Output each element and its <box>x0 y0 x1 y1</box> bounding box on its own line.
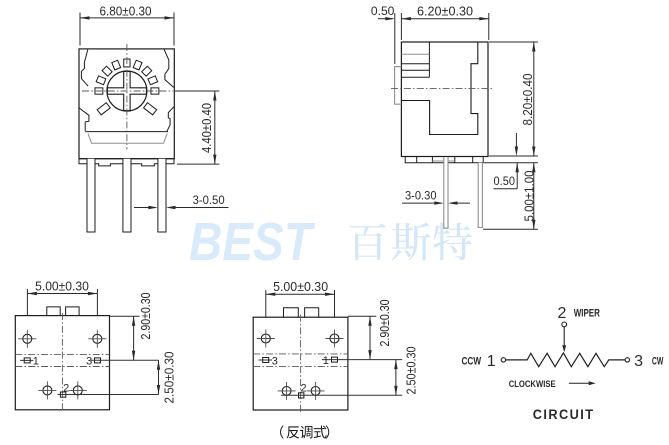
svg-text:2.90±0.30: 2.90±0.30 <box>378 299 392 346</box>
svg-text:0.50: 0.50 <box>371 4 395 18</box>
svg-text:3-0.30: 3-0.30 <box>405 189 437 203</box>
svg-text:1: 1 <box>487 353 496 370</box>
svg-text:CW: CW <box>652 355 664 367</box>
svg-text:CCW: CCW <box>462 355 482 367</box>
svg-text:0.50: 0.50 <box>494 174 516 188</box>
svg-text:8.20±0.40: 8.20±0.40 <box>521 73 535 125</box>
svg-text:5.00±0.30: 5.00±0.30 <box>273 280 328 294</box>
svg-text:2.50±0.30: 2.50±0.30 <box>404 346 418 394</box>
svg-text:4.40±0.40: 4.40±0.40 <box>200 103 214 153</box>
svg-text:WIPER: WIPER <box>574 307 600 319</box>
svg-text:CIRCUIT: CIRCUIT <box>533 407 595 422</box>
svg-text:CLOCKWISE: CLOCKWISE <box>509 379 556 390</box>
svg-text:2.50±0.30: 2.50±0.30 <box>162 351 176 403</box>
svg-text:3-0.50: 3-0.50 <box>193 193 225 207</box>
svg-text:1: 1 <box>323 355 329 367</box>
svg-text:3: 3 <box>634 353 643 370</box>
svg-text:2.90±0.30: 2.90±0.30 <box>139 292 153 339</box>
svg-text:6.80±0.30: 6.80±0.30 <box>100 4 152 18</box>
svg-text:5.00±0.30: 5.00±0.30 <box>35 279 89 293</box>
svg-text:2: 2 <box>558 305 567 322</box>
svg-text:5.00±1.00: 5.00±1.00 <box>522 170 536 221</box>
svg-text:BEST: BEST <box>189 212 315 272</box>
svg-text:3: 3 <box>86 355 92 367</box>
svg-text:3: 3 <box>272 355 278 367</box>
svg-text:1: 1 <box>33 356 39 368</box>
svg-text:6.20±0.30: 6.20±0.30 <box>417 4 473 18</box>
